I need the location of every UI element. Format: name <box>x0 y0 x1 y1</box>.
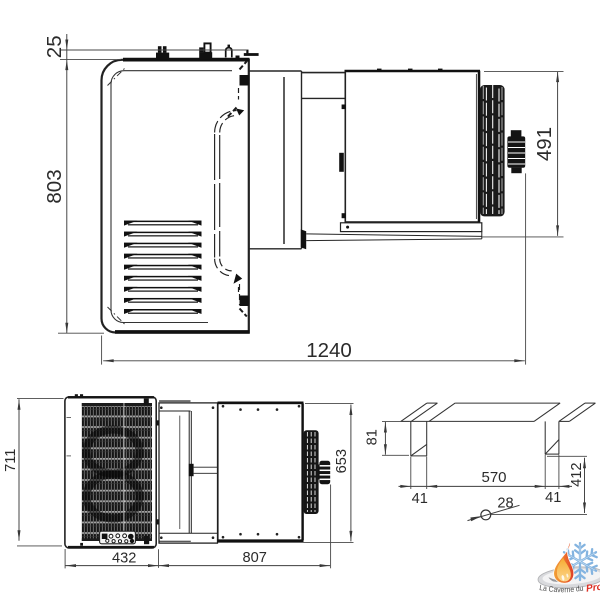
svg-text:570: 570 <box>481 469 506 486</box>
svg-text:25: 25 <box>43 35 66 58</box>
svg-text:807: 807 <box>243 550 267 566</box>
svg-text:41: 41 <box>545 490 561 506</box>
svg-text:711: 711 <box>3 449 19 472</box>
svg-text:653: 653 <box>334 449 350 473</box>
svg-text:81: 81 <box>364 429 380 445</box>
svg-text:28: 28 <box>497 496 513 512</box>
svg-text:1240: 1240 <box>306 339 352 362</box>
svg-text:Pro: Pro <box>585 582 600 595</box>
svg-text:491: 491 <box>533 127 556 161</box>
svg-text:41: 41 <box>412 491 428 507</box>
svg-text:432: 432 <box>112 550 136 566</box>
svg-text:803: 803 <box>43 169 66 203</box>
svg-text:412: 412 <box>569 463 585 487</box>
